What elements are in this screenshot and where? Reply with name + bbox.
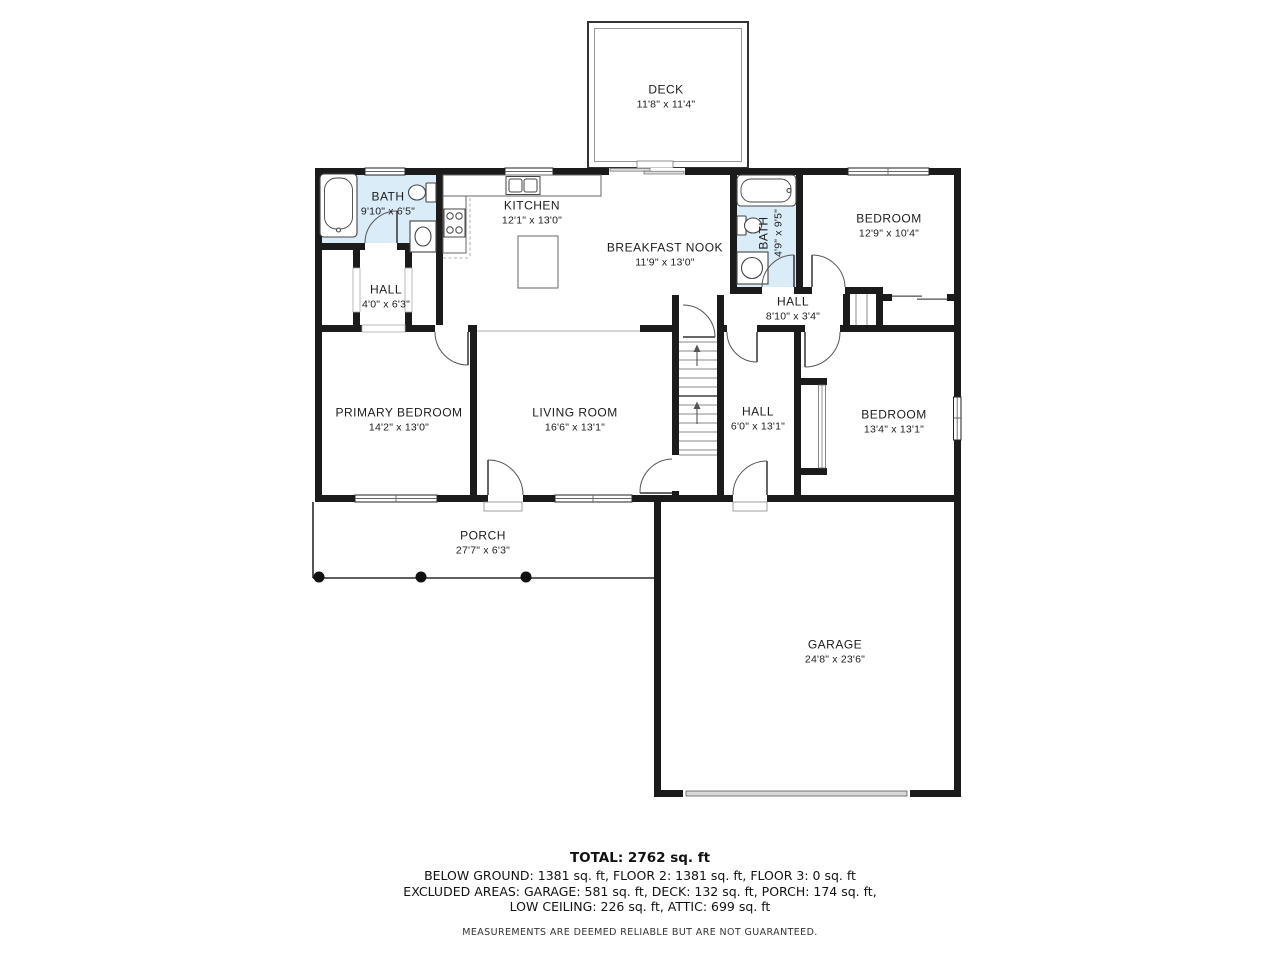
kitchen-sink-basin xyxy=(524,179,537,192)
bathtub-basin xyxy=(741,179,791,202)
room-name: GARAGE xyxy=(805,638,865,651)
room-label-breakfast-nook: BREAKFAST NOOK 11'9" x 13'0" xyxy=(607,241,723,268)
tub-faucet xyxy=(787,189,791,193)
room-dims: 6'0" x 13'1" xyxy=(731,421,785,433)
room-dims: 8'10" x 3'4" xyxy=(766,311,820,323)
summary-areas-line: BELOW GROUND: 1381 sq. ft, FLOOR 2: 1381… xyxy=(0,868,1280,884)
room-name: BATH xyxy=(757,209,770,257)
room-name: HALL xyxy=(731,405,785,418)
garage-step xyxy=(733,502,767,511)
room-label-bedroom-lower: BEDROOM 13'4" x 13'1" xyxy=(861,408,927,435)
floor-plan: DECK 11'8" x 11'4" BATH 9'10" x 6'5" KIT… xyxy=(0,0,1280,960)
porch-post xyxy=(314,572,325,583)
room-name: KITCHEN xyxy=(502,199,562,212)
porch-post xyxy=(416,572,427,583)
room-name: BEDROOM xyxy=(861,408,927,421)
room-name: PORCH xyxy=(456,529,510,542)
room-name: BEDROOM xyxy=(856,212,922,225)
summary-excluded-line-2: LOW CEILING: 226 sq. ft, ATTIC: 699 sq. … xyxy=(0,899,1280,915)
room-dims: 9'10" x 6'5" xyxy=(361,206,415,218)
room-label-garage: GARAGE 24'8" x 23'6" xyxy=(805,638,865,665)
kitchen-fixtures xyxy=(443,175,601,288)
room-name: HALL xyxy=(766,295,820,308)
room-dims: 14'2" x 13'0" xyxy=(335,422,462,434)
garage-door xyxy=(686,791,907,796)
stove-burner xyxy=(456,227,462,233)
closet-door-panels xyxy=(856,294,867,325)
room-label-primary-bedroom: PRIMARY BEDROOM 14'2" x 13'0" xyxy=(335,406,462,433)
room-name: PRIMARY BEDROOM xyxy=(335,406,462,419)
room-name: BATH xyxy=(361,190,415,203)
room-name: DECK xyxy=(637,83,696,96)
area-summary: TOTAL: 2762 sq. ft BELOW GROUND: 1381 sq… xyxy=(0,850,1280,938)
room-label-bath-main: BATH 9'10" x 6'5" xyxy=(361,190,415,217)
summary-excluded-line-1: EXCLUDED AREAS: GARAGE: 581 sq. ft, DECK… xyxy=(0,884,1280,900)
room-label-hall-lower: HALL 6'0" x 13'1" xyxy=(731,405,785,432)
stove-burner xyxy=(447,227,453,233)
room-label-porch: PORCH 27'7" x 6'3" xyxy=(456,529,510,556)
bath-sink xyxy=(742,258,763,279)
room-label-bedroom-upper: BEDROOM 12'9" x 10'4" xyxy=(856,212,922,239)
room-label-bath-hall: BATH 4'9" x 9'5" xyxy=(757,209,784,257)
room-dims: 12'1" x 13'0" xyxy=(502,215,562,227)
bath-sink xyxy=(415,227,431,246)
room-label-hall-upper: HALL 8'10" x 3'4" xyxy=(766,295,820,322)
room-dims: 12'9" x 10'4" xyxy=(856,228,922,240)
toilet-tank xyxy=(426,183,436,202)
staircase xyxy=(679,342,717,455)
front-step xyxy=(484,502,522,511)
porch-post xyxy=(521,572,532,583)
deck-sliding-door xyxy=(610,168,650,171)
room-dims: 24'8" x 23'6" xyxy=(805,654,865,666)
room-dims: 4'0" x 6'3" xyxy=(362,299,410,311)
floor-plan-drawing xyxy=(0,0,1280,960)
summary-disclaimer: MEASUREMENTS ARE DEEMED RELIABLE BUT ARE… xyxy=(0,927,1280,938)
kitchen-island xyxy=(518,236,558,288)
tub-faucet xyxy=(337,228,341,232)
room-name: BREAKFAST NOOK xyxy=(607,241,723,254)
room-label-living-room: LIVING ROOM 16'6" x 13'1" xyxy=(532,406,618,433)
room-dims: 4'9" x 9'5" xyxy=(773,209,785,257)
stove xyxy=(444,209,465,237)
room-dims: 11'9" x 13'0" xyxy=(607,257,723,269)
room-label-kitchen: KITCHEN 12'1" x 13'0" xyxy=(502,199,562,226)
room-dims: 27'7" x 6'3" xyxy=(456,545,510,557)
deck-sliding-door xyxy=(644,171,684,174)
stove-burner xyxy=(447,213,453,219)
stove-burner xyxy=(456,213,462,219)
room-label-hall-small: HALL 4'0" x 6'3" xyxy=(362,283,410,310)
room-dims: 16'6" x 13'1" xyxy=(532,422,618,434)
summary-total: TOTAL: 2762 sq. ft xyxy=(0,850,1280,866)
room-dims: 11'8" x 11'4" xyxy=(637,99,696,111)
room-dims: 13'4" x 13'1" xyxy=(861,424,927,436)
bathtub-basin xyxy=(325,178,353,229)
room-name: LIVING ROOM xyxy=(532,406,618,419)
room-name: HALL xyxy=(362,283,410,296)
room-label-deck: DECK 11'8" x 11'4" xyxy=(637,83,696,110)
kitchen-sink-basin xyxy=(509,179,522,192)
